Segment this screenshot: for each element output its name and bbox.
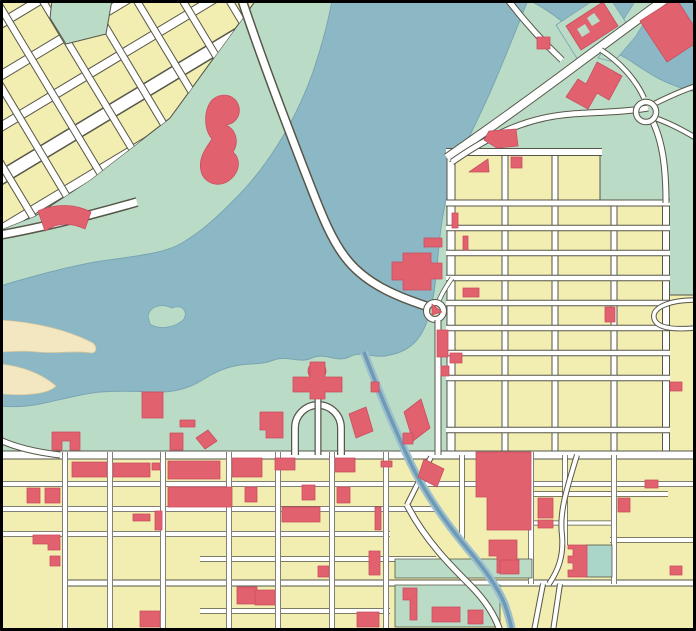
building xyxy=(245,487,257,502)
building xyxy=(72,462,107,477)
south-grid-blocks xyxy=(0,452,696,631)
city-map[interactable] xyxy=(0,0,696,631)
building xyxy=(275,458,295,470)
building xyxy=(113,463,150,477)
building xyxy=(168,487,232,507)
building xyxy=(452,213,458,228)
building xyxy=(403,433,413,444)
building xyxy=(27,488,40,503)
building xyxy=(670,382,682,391)
building xyxy=(337,487,350,503)
building xyxy=(255,590,275,605)
building xyxy=(45,488,60,503)
building xyxy=(463,288,479,297)
pond xyxy=(586,545,612,577)
building xyxy=(142,392,163,418)
building-tower xyxy=(437,330,448,357)
building xyxy=(133,514,150,521)
building xyxy=(538,520,553,528)
building xyxy=(441,366,449,376)
building xyxy=(538,498,553,518)
building xyxy=(335,458,355,472)
map-viewport[interactable] xyxy=(0,0,696,631)
building xyxy=(537,37,550,49)
building xyxy=(381,461,392,467)
building xyxy=(645,480,658,488)
building xyxy=(180,420,195,427)
building xyxy=(302,485,315,500)
building xyxy=(170,433,183,450)
building xyxy=(357,612,379,627)
building xyxy=(500,560,519,574)
building xyxy=(468,610,483,624)
building xyxy=(152,463,160,470)
building xyxy=(50,556,60,566)
building xyxy=(369,551,380,575)
building xyxy=(237,587,257,604)
building xyxy=(282,507,320,522)
building xyxy=(232,458,262,477)
building xyxy=(424,238,442,247)
building xyxy=(375,507,381,530)
building xyxy=(463,236,468,250)
building xyxy=(511,157,522,168)
building xyxy=(168,461,220,479)
building xyxy=(140,611,160,627)
building xyxy=(318,566,329,577)
building xyxy=(618,498,630,512)
building xyxy=(605,307,615,322)
building xyxy=(155,511,162,530)
building xyxy=(450,353,462,363)
building xyxy=(432,607,460,622)
building xyxy=(371,382,379,392)
building xyxy=(670,566,682,575)
